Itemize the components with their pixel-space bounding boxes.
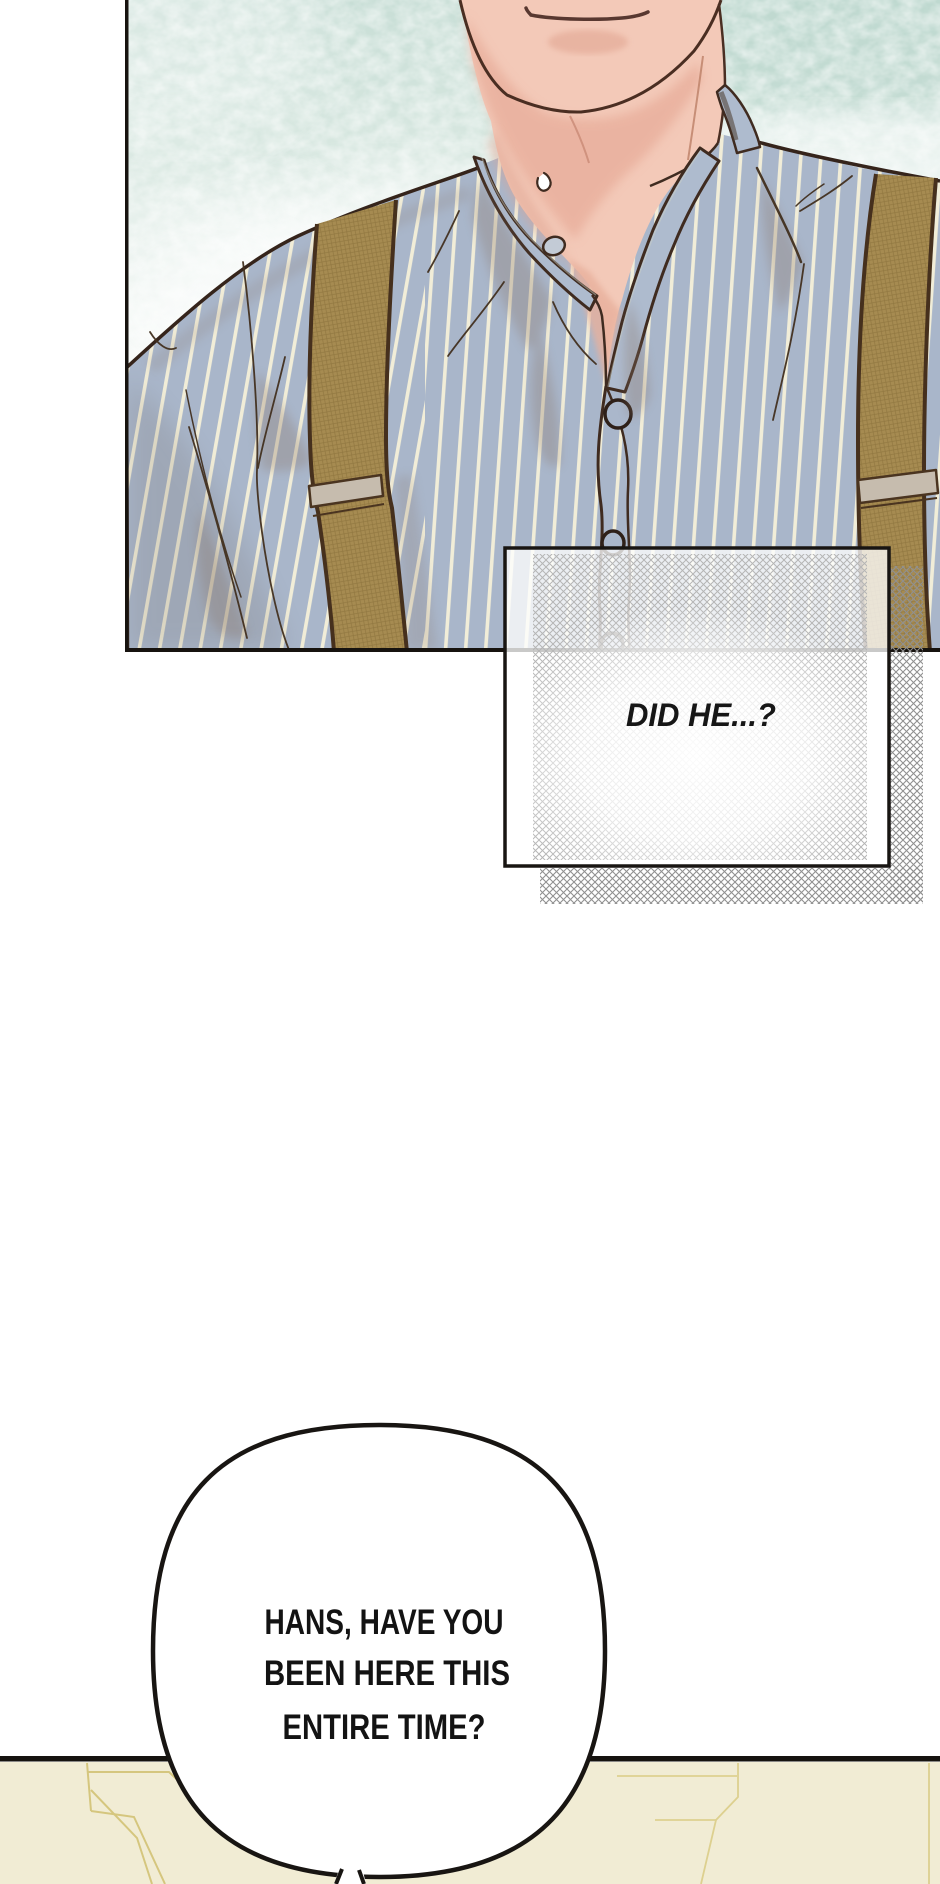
svg-text:HANS, HAVE YOU: HANS, HAVE YOU (265, 1603, 504, 1642)
svg-text:BEEN HERE THIS: BEEN HERE THIS (264, 1654, 510, 1693)
svg-text:DID HE...?: DID HE...? (626, 697, 776, 733)
svg-text:ENTIRE TIME?: ENTIRE TIME? (283, 1708, 486, 1747)
